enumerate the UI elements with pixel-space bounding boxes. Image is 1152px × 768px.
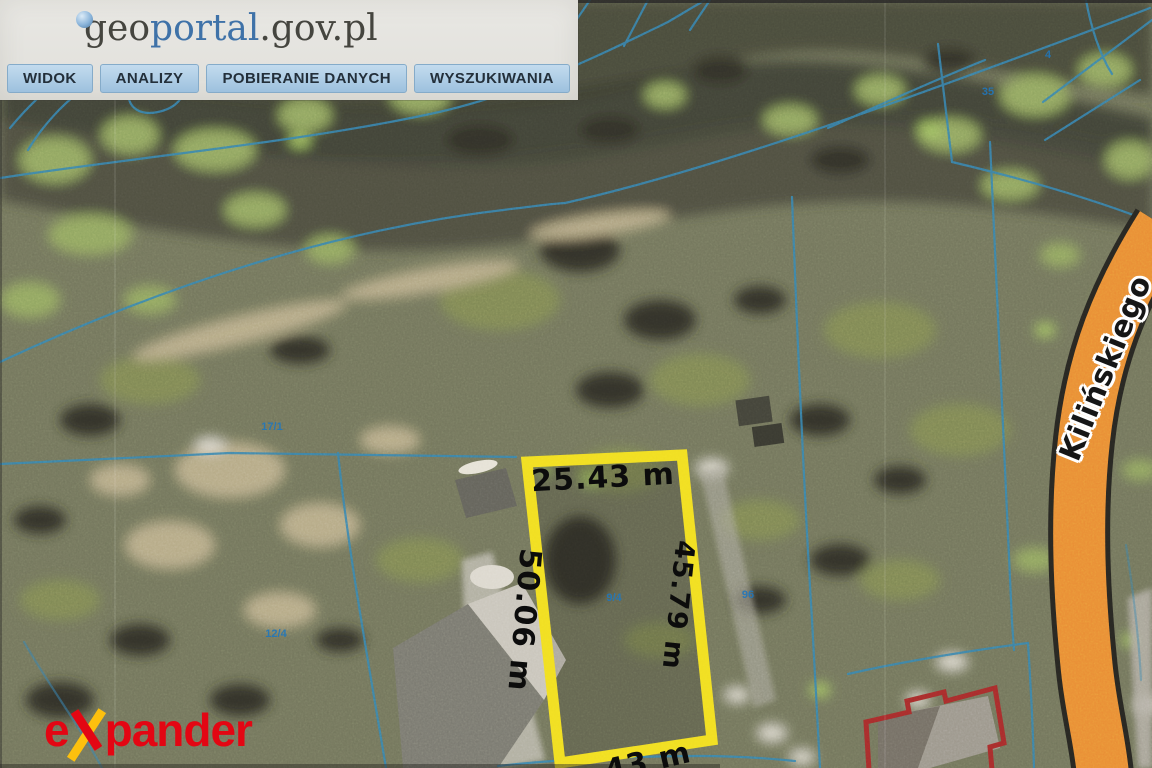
menu-button-widok[interactable]: WIDOK xyxy=(7,64,93,93)
cadastral-number: 96 xyxy=(742,589,754,601)
logo-text-geo: geo xyxy=(84,8,150,49)
menu-button-analizy[interactable]: ANALIZY xyxy=(100,64,200,93)
logo-text-suffix: .gov.pl xyxy=(259,8,377,49)
geoportal-logo: geoportal.gov.pl xyxy=(0,0,578,60)
expander-x-icon xyxy=(70,710,104,750)
expander-text-suffix: pander xyxy=(105,710,252,750)
cadastral-number: 12/4 xyxy=(265,628,286,640)
logo-text-portal: portal xyxy=(150,8,259,49)
menu-button-pobieranie-danych[interactable]: POBIERANIE DANYCH xyxy=(206,64,406,93)
geoportal-header-panel: geoportal.gov.pl WIDOK ANALIZY POBIERANI… xyxy=(0,0,578,100)
cadastral-number: 4 xyxy=(1045,49,1051,61)
expander-watermark-logo: e pander xyxy=(44,710,252,750)
aerial-photo xyxy=(0,0,1152,768)
scan-artifacts xyxy=(0,0,1152,768)
menu-button-wyszukiwania[interactable]: WYSZUKIWANIA xyxy=(414,64,570,93)
cadastral-number: 9/4 xyxy=(606,592,621,604)
map-canvas[interactable]: 25.43 m 50.06 m 45.79 m 43 m Kilińskiego… xyxy=(0,0,1152,768)
expander-text-prefix: e xyxy=(44,710,69,750)
parcel-measurement-top: 25.43 m xyxy=(530,457,675,499)
globe-icon xyxy=(76,11,93,28)
cadastral-number: 35 xyxy=(982,86,994,98)
main-menu: WIDOK ANALIZY POBIERANIE DANYCH WYSZUKIW… xyxy=(0,60,578,96)
cadastral-number: 17/1 xyxy=(261,421,282,433)
